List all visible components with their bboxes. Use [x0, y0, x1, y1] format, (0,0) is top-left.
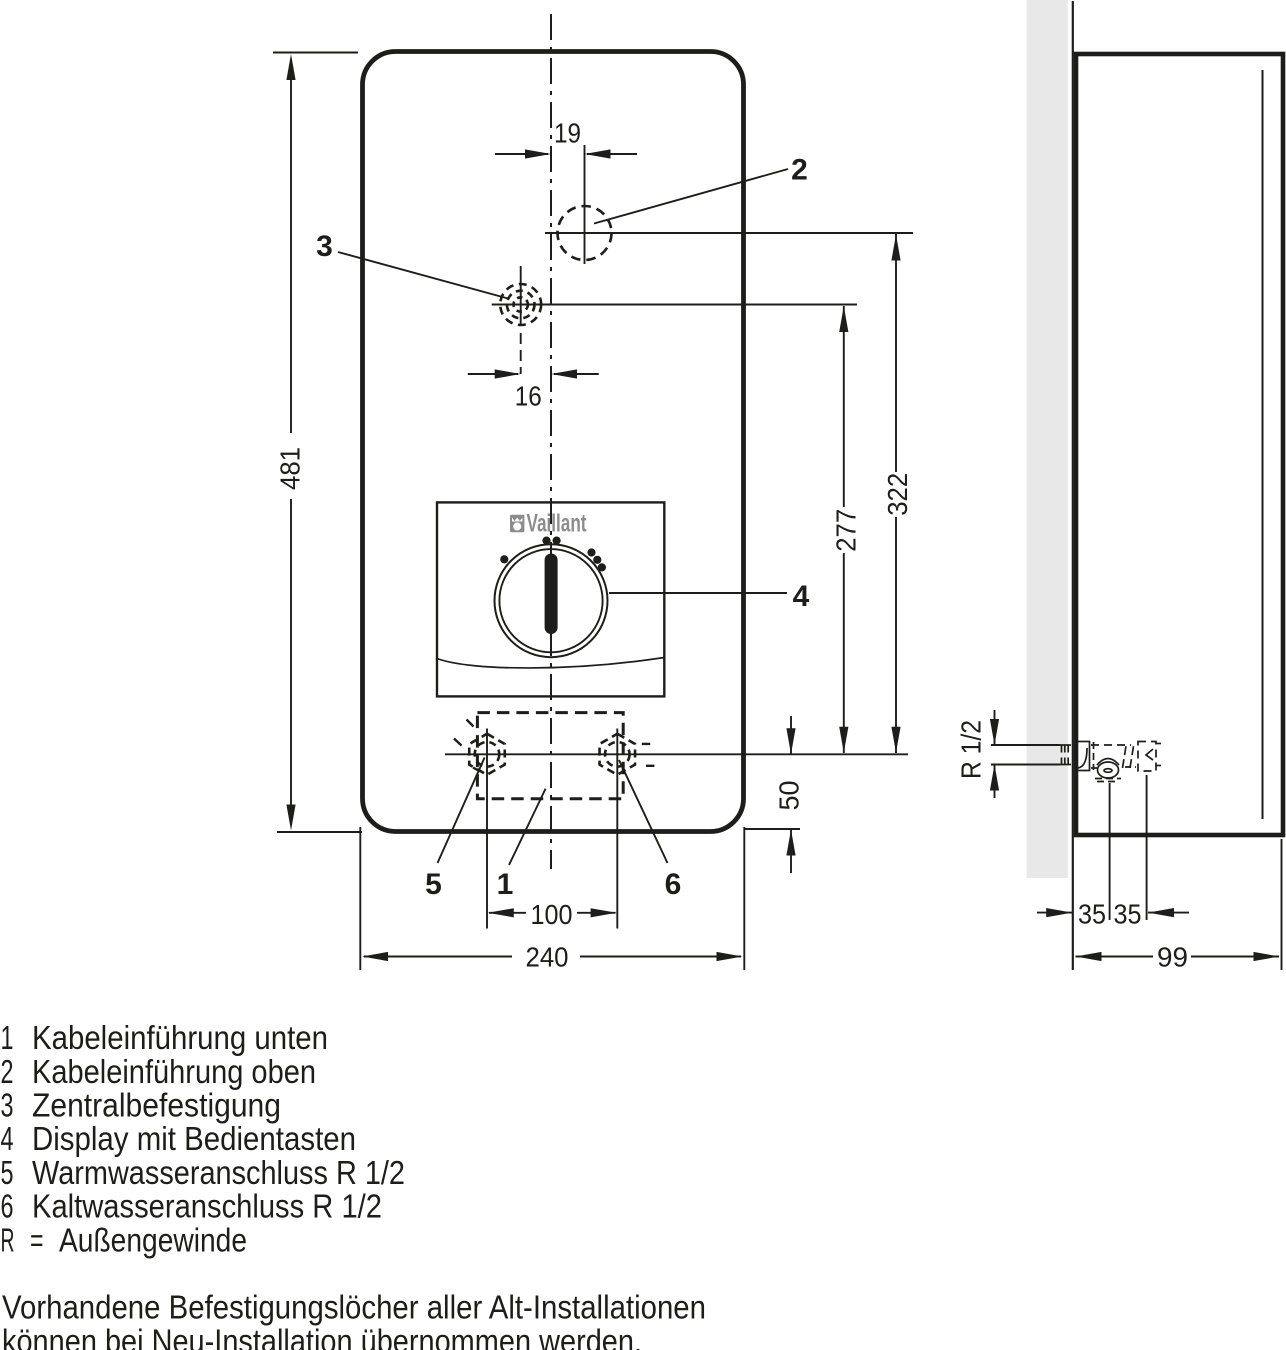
svg-text:Vaillant: Vaillant	[527, 510, 587, 538]
svg-text:4: 4	[1, 1120, 14, 1157]
svg-text:1: 1	[1, 1019, 14, 1056]
svg-text:240: 240	[526, 942, 569, 973]
svg-text:R: R	[1, 1221, 15, 1258]
svg-text:5: 5	[1, 1154, 14, 1191]
svg-text:35: 35	[1078, 899, 1106, 930]
svg-text:Zentralbefestigung: Zentralbefestigung	[32, 1087, 281, 1124]
svg-text:1: 1	[497, 868, 514, 901]
svg-text:322: 322	[882, 473, 913, 516]
svg-text:481: 481	[274, 447, 305, 490]
svg-text:99: 99	[1157, 942, 1188, 973]
svg-text:Kaltwasseranschluss R 1/2: Kaltwasseranschluss R 1/2	[32, 1188, 382, 1225]
svg-text:Warmwasseranschluss R 1/2: Warmwasseranschluss R 1/2	[32, 1154, 405, 1191]
svg-text:4: 4	[793, 580, 810, 613]
svg-text:6: 6	[665, 868, 682, 901]
svg-text:Kabeleinführung oben: Kabeleinführung oben	[32, 1053, 316, 1090]
svg-text:50: 50	[774, 781, 805, 811]
svg-text:Außengewinde: Außengewinde	[59, 1221, 247, 1258]
svg-text:R 1/2: R 1/2	[956, 720, 987, 779]
svg-text:3: 3	[316, 230, 333, 263]
svg-text:=: =	[30, 1221, 44, 1258]
svg-text:19: 19	[554, 118, 581, 149]
svg-text:2: 2	[1, 1053, 14, 1090]
svg-text:277: 277	[830, 509, 861, 552]
svg-text:3: 3	[1, 1087, 14, 1124]
svg-text:100: 100	[531, 899, 573, 930]
svg-text:Kabeleinführung unten: Kabeleinführung unten	[32, 1019, 328, 1056]
svg-text:Display mit Bedientasten: Display mit Bedientasten	[32, 1120, 356, 1157]
svg-text:Vorhandene Befestigungslöcher: Vorhandene Befestigungslöcher aller Alt-…	[2, 1289, 706, 1326]
svg-text:5: 5	[425, 868, 442, 901]
svg-text:16: 16	[515, 381, 542, 412]
svg-text:6: 6	[1, 1188, 14, 1225]
svg-text:können bei Neu-Installation üb: können bei Neu-Installation übernommen w…	[2, 1323, 642, 1350]
svg-text:2: 2	[791, 154, 808, 187]
svg-text:35: 35	[1114, 899, 1142, 930]
